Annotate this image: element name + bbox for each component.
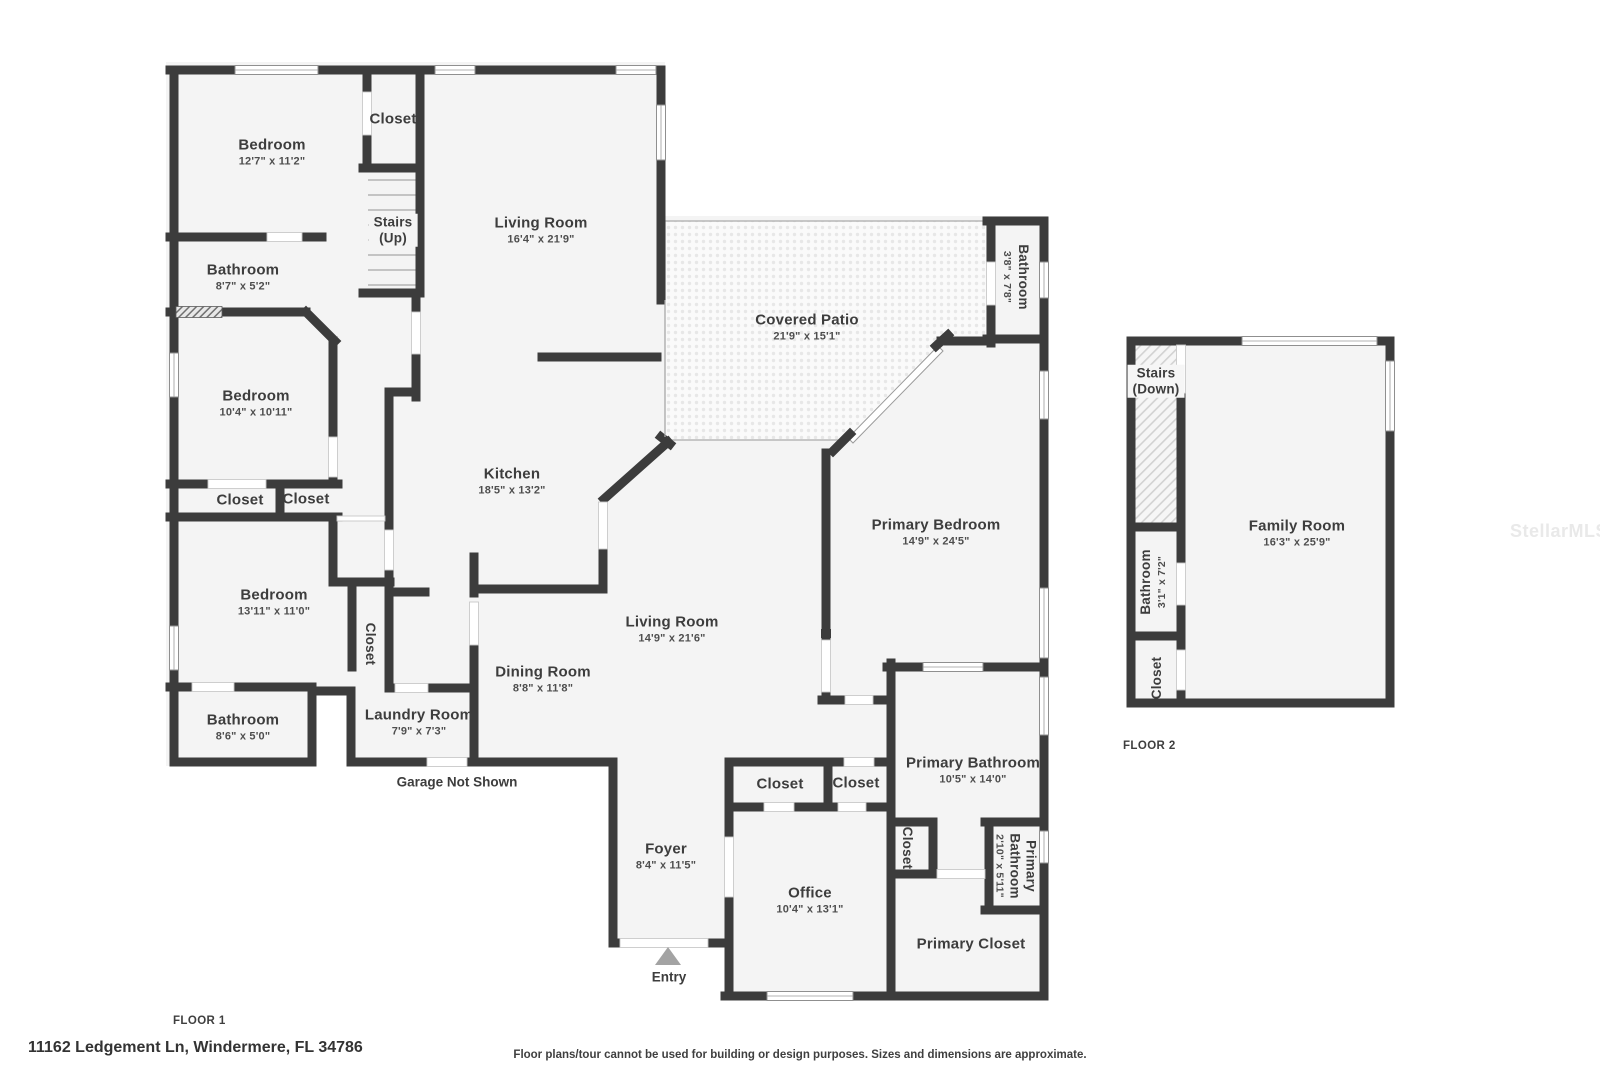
door-nub [821,629,831,638]
floor2-stairs-hatch [1135,345,1177,525]
floorplan-page: Bedroom 12'7" x 11'2" Closet Stairs (Up)… [0,0,1600,1066]
disclaimer-text: Floor plans/tour cannot be used for buil… [513,1049,1086,1061]
floor2-tag: FLOOR 2 [1123,740,1176,752]
entry-arrow-icon [655,947,681,965]
vent-hatch [176,307,222,318]
watermark: StellarMLS [1510,521,1600,542]
entry-label: Entry [652,970,687,985]
floorplan-drawing [0,0,1600,1066]
garage-note: Garage Not Shown [397,775,518,790]
property-address: 11162 Ledgement Ln, Windermere, FL 34786 [28,1039,363,1057]
floor1-tag: FLOOR 1 [173,1015,226,1027]
